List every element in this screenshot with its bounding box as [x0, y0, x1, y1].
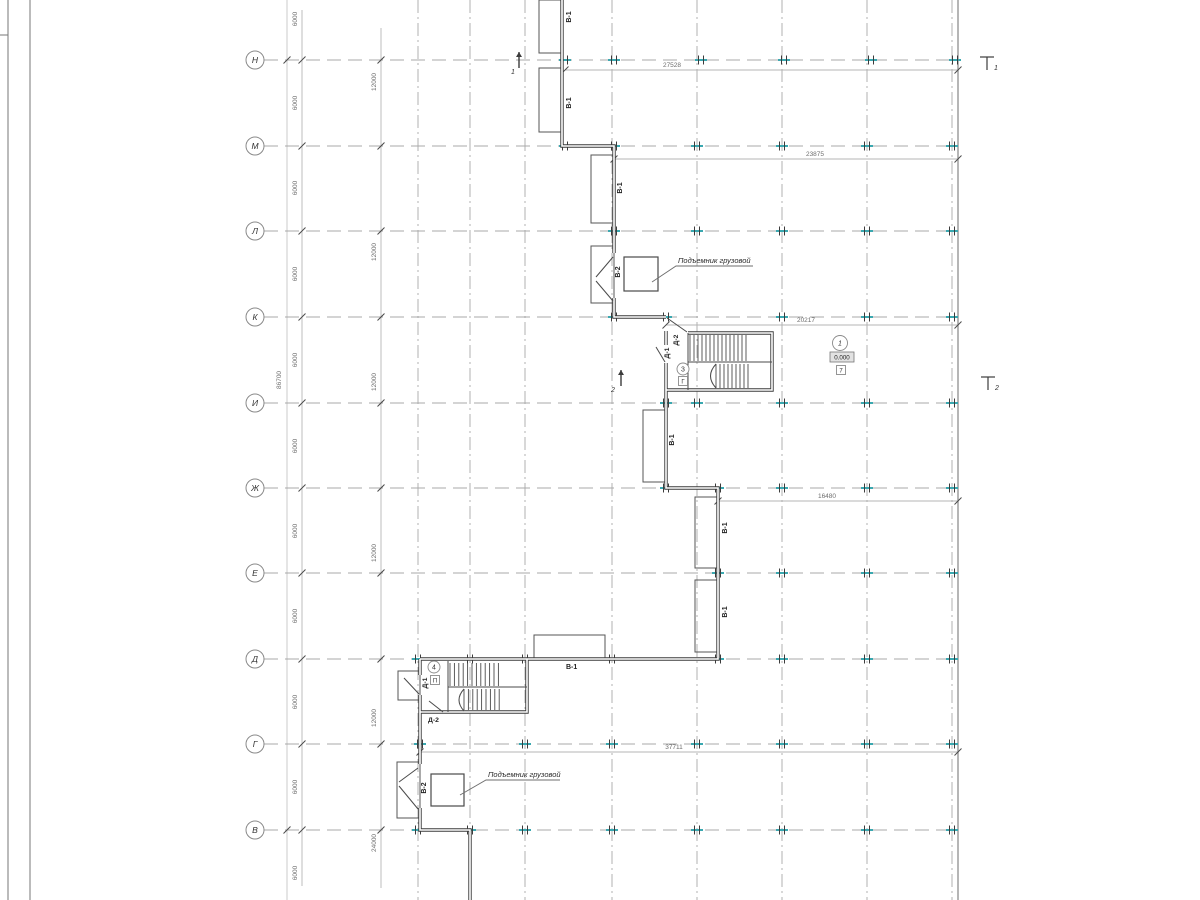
dim-text-6000: 6000: [292, 438, 299, 453]
horizontal-dimensions: 2752823875202171648037711: [417, 62, 962, 756]
wall-label-b1: В-1: [669, 434, 676, 445]
wall-label-b1: В-1: [722, 606, 729, 617]
hoist-box: [624, 257, 658, 291]
axis-letter: Е: [252, 568, 258, 578]
dim-text-6000: 6000: [292, 608, 299, 623]
dim-text-12000: 12000: [371, 73, 378, 91]
axis-letter: В: [252, 825, 258, 835]
section-number: 2: [994, 385, 999, 392]
pilaster: [397, 762, 420, 818]
stair1-room-number: 3: [681, 367, 685, 374]
dim-text-6000: 6000: [292, 694, 299, 709]
axis-letter: Д: [251, 654, 258, 664]
door-label-d1: Д-1: [664, 347, 671, 358]
dim-text-24000: 24000: [371, 834, 378, 852]
dim-text-horizontal: 37711: [665, 744, 683, 751]
axis-bubbles: НМЛКИЖЕДГВ: [246, 51, 264, 839]
hoist-leader: [460, 780, 560, 795]
door-leaf: [596, 257, 613, 277]
dim-text-12000: 12000: [371, 709, 378, 727]
pilaster: [539, 0, 562, 53]
pilaster: [591, 246, 614, 303]
sheet-frame: [0, 0, 958, 900]
hoist-leader: [652, 266, 753, 282]
hoist-label: Подъемник грузовой: [678, 256, 751, 265]
dim-text-12000: 12000: [371, 243, 378, 261]
dim-text-6000: 6000: [292, 11, 299, 26]
dim-text-12000: 12000: [371, 544, 378, 562]
vertical-dimension-chains: 6000600060006000600060006000600060006000…: [276, 10, 385, 888]
dim-text-6000: 6000: [292, 865, 299, 880]
dim-text-6000: 6000: [292, 352, 299, 367]
door-leaf: [399, 786, 418, 809]
wall-label-b1: В-1: [566, 664, 577, 671]
dim-text-horizontal: 16480: [818, 493, 836, 500]
stair-curl: [711, 364, 717, 388]
section-arrow: [618, 370, 624, 375]
door-leaf: [596, 281, 613, 301]
dim-text-6000: 6000: [292, 266, 299, 281]
axis-letter: Ж: [250, 483, 260, 493]
section-number: 1: [511, 69, 515, 76]
section-marks: 1122: [511, 52, 999, 394]
door-label-d2: Д-2: [673, 334, 680, 345]
pilaster: [695, 497, 718, 568]
dim-text-horizontal: 23875: [806, 151, 824, 158]
wall-core: [420, 0, 772, 900]
room1-number: 1: [838, 341, 842, 348]
stair-curl: [459, 689, 464, 711]
floor-plan-drawing: 6000600060006000600060006000600060006000…: [0, 0, 1200, 900]
hoist-label: Подъемник грузовой: [488, 770, 561, 779]
pilaster: [695, 580, 718, 652]
dim-text-6000: 6000: [292, 779, 299, 794]
dim-text-horizontal: 20217: [797, 317, 815, 324]
reference-marks: 3Г4П10.0007: [428, 336, 854, 685]
section-arrow: [516, 52, 522, 57]
floor-plan-sheet: 6000600060006000600060006000600060006000…: [0, 0, 1200, 900]
dim-text-6000: 6000: [292, 523, 299, 538]
wall-label-b1: В-1: [617, 182, 624, 193]
freight-hoists: Подъемник грузовойПодъемник грузовой: [431, 256, 753, 806]
wall-outline: [420, 0, 772, 900]
wall-label-b2: В-2: [421, 782, 428, 793]
pilaster: [398, 671, 420, 700]
axis-letter: М: [251, 141, 259, 151]
dim-text-86700: 86700: [276, 371, 283, 389]
dim-text-6000: 6000: [292, 95, 299, 110]
pilaster: [591, 155, 614, 223]
section-number: 2: [610, 387, 615, 394]
level-value: 0.000: [834, 355, 850, 362]
hoist-box: [431, 774, 464, 806]
axis-letter: Л: [251, 226, 258, 236]
door-label-d1: Д-1: [422, 677, 429, 688]
pilasters: [397, 0, 718, 818]
column-symbols: [412, 56, 961, 835]
grid-lines: [264, 0, 958, 900]
pilaster: [539, 68, 562, 132]
pilaster: [534, 635, 605, 659]
wall-label-b1: В-1: [566, 97, 573, 108]
wall-label-b1: В-1: [722, 522, 729, 533]
stair2-room-number: 4: [432, 665, 436, 672]
pilaster: [643, 410, 666, 482]
axis-letter: Н: [252, 55, 259, 65]
axis-letter: И: [252, 398, 259, 408]
door-label-d2: Д-2: [428, 717, 439, 724]
door-leaf: [399, 768, 418, 782]
building-walls: [420, 0, 772, 900]
dim-text-6000: 6000: [292, 180, 299, 195]
wall-label-b1: В-1: [566, 11, 573, 22]
door-leaf: [404, 678, 419, 694]
dim-text-12000: 12000: [371, 373, 378, 391]
section-number: 1: [994, 65, 998, 72]
wall-label-b2: В-2: [615, 266, 622, 277]
stair2-type-text: П: [433, 679, 437, 685]
dim-text-horizontal: 27528: [663, 62, 681, 69]
door-leaves: [399, 257, 687, 809]
